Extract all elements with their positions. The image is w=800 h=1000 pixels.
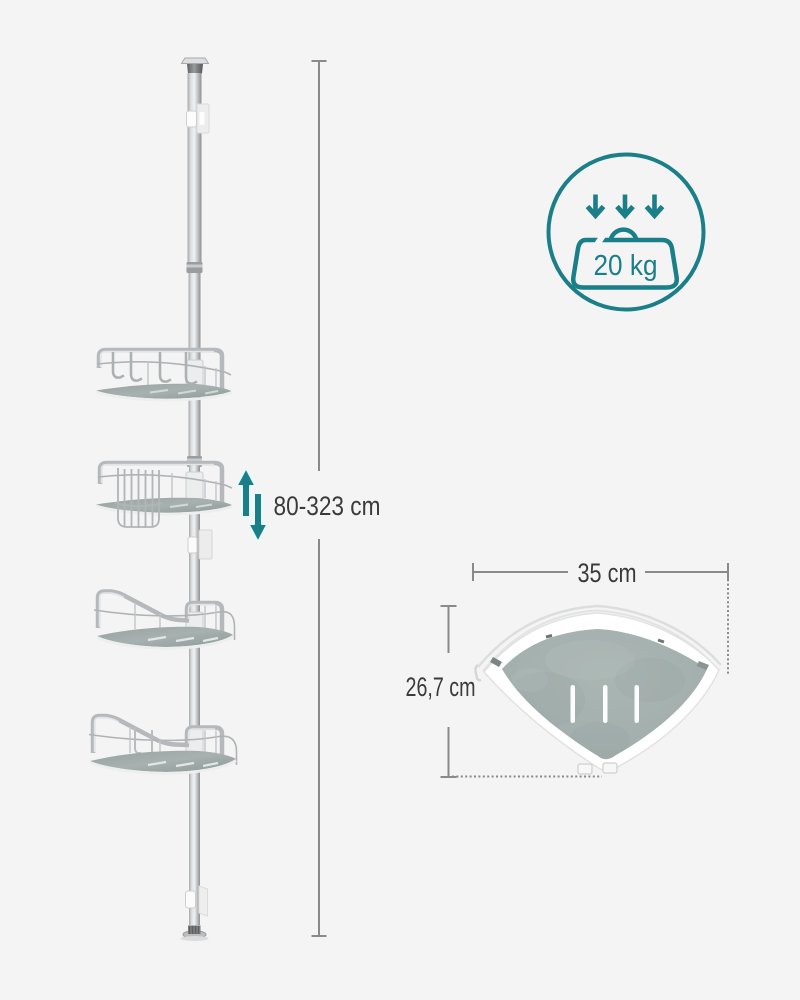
svg-text:26,7 cm: 26,7 cm <box>406 672 476 702</box>
svg-text:20 kg: 20 kg <box>594 250 658 282</box>
svg-text:35 cm: 35 cm <box>578 558 637 588</box>
svg-text:80-323 cm: 80-323 cm <box>274 491 381 521</box>
